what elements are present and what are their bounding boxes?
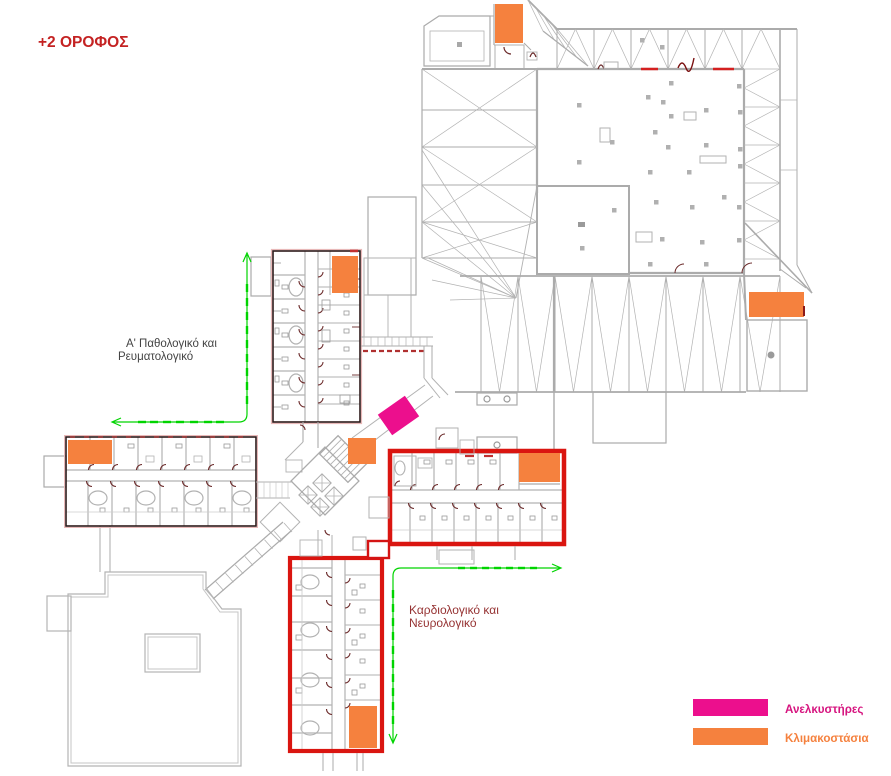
svg-text:Ρευματολογικό: Ρευματολογικό [118,351,193,363]
svg-text:Κλιμακοστάσια: Κλιμακοστάσια [785,732,869,745]
svg-text:Καρδιολογικό και: Καρδιολογικό και [409,603,499,617]
svg-text:Α' Παθολογικό και: Α' Παθολογικό και [126,338,217,350]
svg-text:+2 ΟΡΟΦΟΣ: +2 ΟΡΟΦΟΣ [38,34,129,51]
svg-text:Νευρολογικό: Νευρολογικό [409,616,477,630]
svg-text:Ανελκυστήρες: Ανελκυστήρες [785,703,863,716]
